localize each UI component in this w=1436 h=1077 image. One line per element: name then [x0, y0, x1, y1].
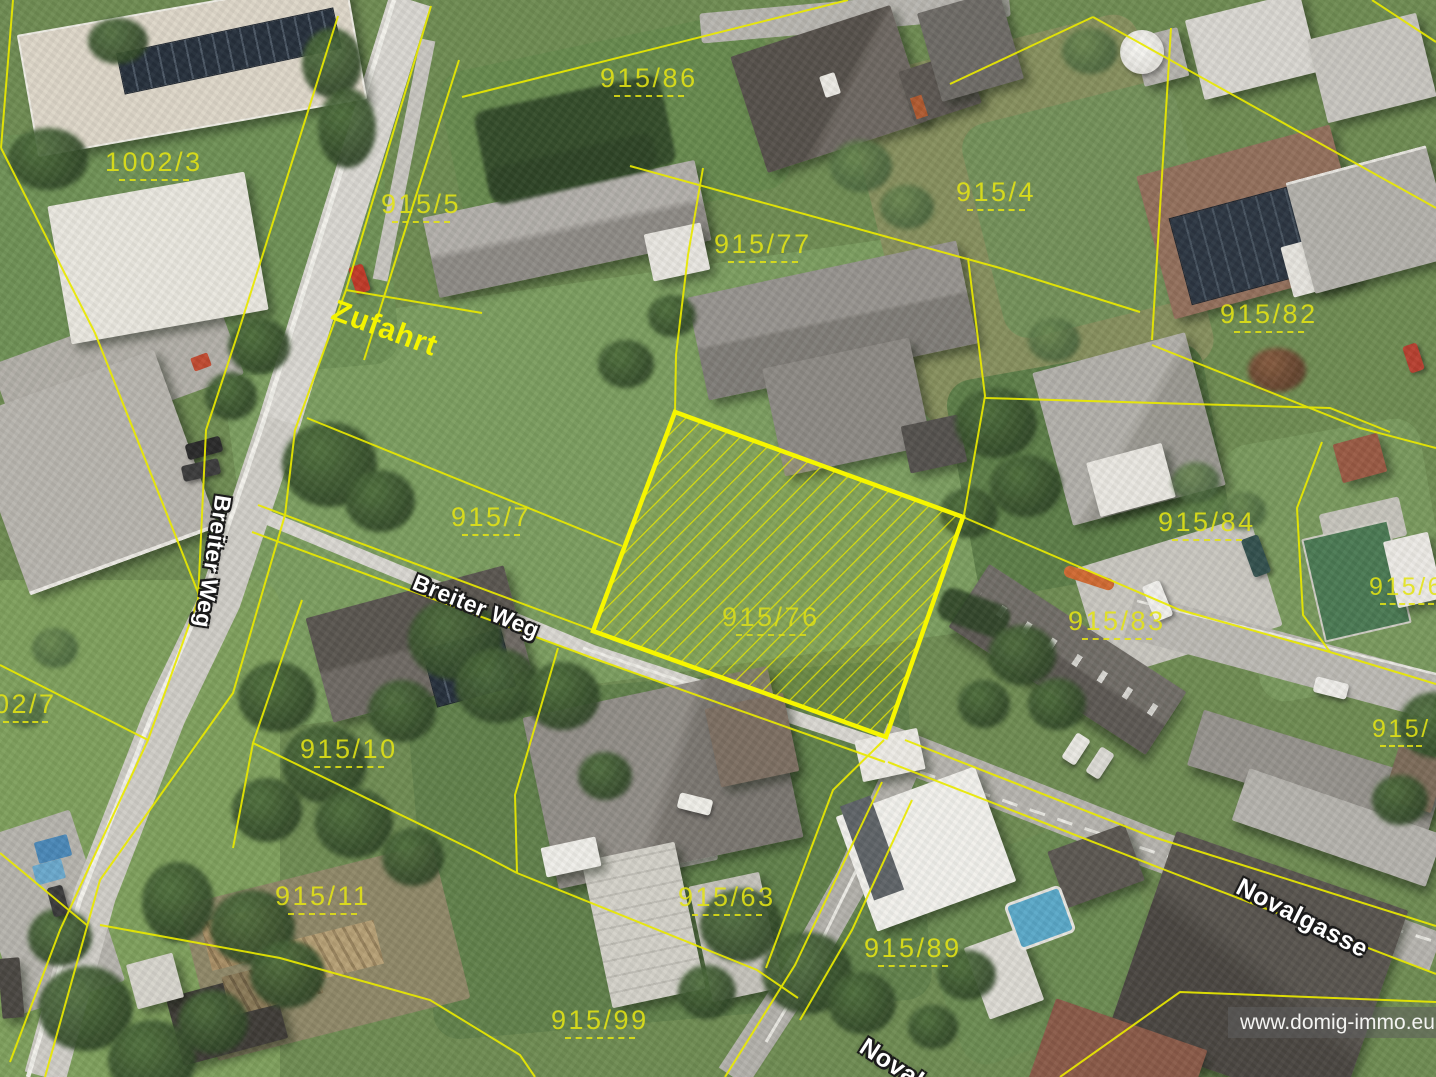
parcel-label-text: 915/63	[678, 883, 776, 911]
label-underline	[614, 95, 684, 97]
highlighted-parcel-hatch	[593, 412, 963, 737]
watermark: www.domig-immo.eu	[1228, 1007, 1436, 1038]
parcel-label-915-5: 915/5	[381, 190, 461, 223]
label-underline	[119, 179, 189, 181]
label-underline	[1380, 603, 1434, 605]
parcel-label-text: 915/11	[275, 882, 371, 910]
label-underline	[1082, 638, 1152, 640]
parcel-label-915-7: 915/7	[451, 503, 531, 536]
label-underline	[462, 534, 520, 536]
parcel-label-915-10: 915/10	[300, 735, 398, 768]
parcel-label-text: 915/	[1372, 716, 1431, 742]
parcel-label-915-11: 915/11	[275, 882, 371, 915]
label-underline	[1172, 539, 1242, 541]
parcel-label-text: 915/82	[1220, 300, 1318, 328]
parcel-label-915-99: 915/99	[551, 1006, 649, 1039]
parcel-label-text: 915/99	[551, 1006, 649, 1034]
parcel-label-text: 1002/3	[105, 148, 203, 176]
parcel-label-915-76: 915/76	[722, 603, 820, 636]
label-underline	[314, 766, 384, 768]
parcel-label-915-83: 915/83	[1068, 607, 1166, 640]
parcel-label-text: 915/86	[600, 64, 698, 92]
parcel-label-text: 02/7	[0, 690, 57, 718]
parcel-label-text: 915/6	[1369, 574, 1436, 600]
parcel-label-915-4: 915/4	[956, 178, 1036, 211]
parcel-label-text: 915/76	[722, 603, 820, 631]
parcel-label-text: 915/5	[381, 190, 461, 218]
parcel-label-915-6-partial: 915/6	[1369, 574, 1436, 605]
parcel-label-text: 915/89	[864, 934, 962, 962]
parcel-label-text: 915/83	[1068, 607, 1166, 635]
parcel-label-text: 915/10	[300, 735, 398, 763]
parcel-label-915-89: 915/89	[864, 934, 962, 967]
label-underline	[1380, 745, 1422, 747]
label-underline	[565, 1037, 635, 1039]
parcel-label-915-82: 915/82	[1220, 300, 1318, 333]
label-underline	[967, 209, 1025, 211]
aerial-map: 1002/3 915/86 915/5 915/77 915/4 915/82 …	[0, 0, 1436, 1077]
parcel-label-915-84: 915/84	[1158, 508, 1256, 541]
label-underline	[878, 965, 948, 967]
label-underline	[728, 261, 798, 263]
label-underline	[3, 721, 48, 723]
parcel-label-915-partial: 915/	[1372, 716, 1431, 747]
parcel-label-text: 915/7	[451, 503, 531, 531]
label-underline	[736, 634, 806, 636]
label-underline	[392, 221, 450, 223]
label-underline	[288, 913, 357, 915]
parcel-label-text: 915/77	[714, 230, 812, 258]
parcel-label-1002-7-partial: 02/7	[0, 690, 57, 723]
parcel-label-text: 915/4	[956, 178, 1036, 206]
parcel-label-915-63: 915/63	[678, 883, 776, 916]
label-underline	[692, 914, 762, 916]
parcel-label-915-86: 915/86	[600, 64, 698, 97]
parcel-label-text: 915/84	[1158, 508, 1256, 536]
parcel-label-1002-3: 1002/3	[105, 148, 203, 181]
parcel-label-915-77: 915/77	[714, 230, 812, 263]
label-underline	[1234, 331, 1304, 333]
